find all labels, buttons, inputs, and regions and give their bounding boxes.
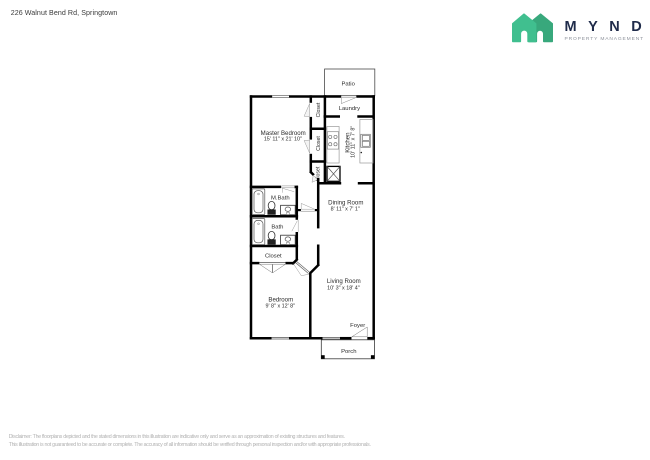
svg-text:Closet: Closet [265,253,282,259]
svg-text:Laundry: Laundry [339,106,360,112]
svg-text:10' 3" x 18' 4": 10' 3" x 18' 4" [327,286,360,292]
svg-text:Closet: Closet [316,136,322,151]
svg-text:M.Bath: M.Bath [271,196,290,202]
svg-text:Porch: Porch [341,349,356,355]
svg-text:Foyer: Foyer [350,323,365,329]
svg-text:15' 11" x 21' 10": 15' 11" x 21' 10" [264,136,302,142]
svg-text:Patio: Patio [341,82,355,88]
svg-text:8' 11" x 7' 1": 8' 11" x 7' 1" [331,207,360,213]
svg-text:Bath: Bath [271,225,283,231]
svg-text:10' 11" x 7' 8": 10' 11" x 7' 8" [350,126,356,158]
svg-text:Bedroom: Bedroom [268,296,293,303]
svg-text:9' 8" x 12' 8": 9' 8" x 12' 8" [266,303,296,309]
svg-text:Living Room: Living Room [327,278,361,285]
svg-text:Closet: Closet [316,102,322,117]
